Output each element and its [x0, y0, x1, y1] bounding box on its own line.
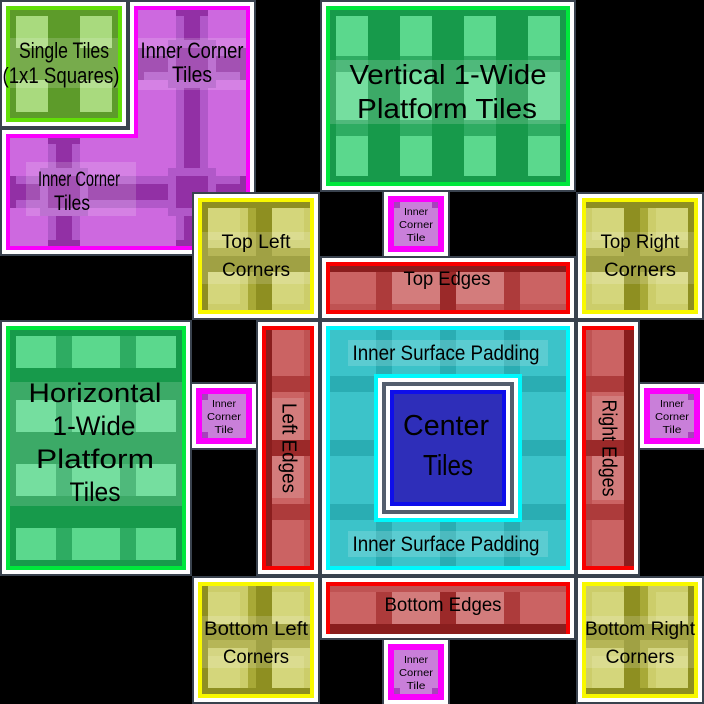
svg-text:Corners: Corners: [604, 260, 676, 281]
svg-text:Corner: Corner: [399, 220, 434, 231]
svg-text:Corners: Corners: [606, 647, 675, 668]
svg-text:Corner: Corner: [399, 668, 434, 679]
svg-text:Corners: Corners: [222, 260, 290, 281]
svg-text:Corners: Corners: [223, 647, 289, 668]
svg-text:Inner Surface Padding: Inner Surface Padding: [353, 342, 540, 365]
svg-text:Corner: Corner: [207, 412, 242, 423]
svg-text:Tile: Tile: [215, 425, 235, 436]
svg-text:Tiles: Tiles: [54, 192, 90, 215]
svg-text:(1x1 Squares): (1x1 Squares): [3, 63, 120, 88]
svg-text:Right Edges: Right Edges: [598, 400, 620, 497]
svg-text:Inner: Inner: [212, 399, 237, 410]
svg-text:Vertical 1-Wide: Vertical 1-Wide: [350, 59, 547, 90]
svg-text:Center: Center: [403, 410, 489, 442]
svg-text:Inner Surface Padding: Inner Surface Padding: [353, 533, 540, 556]
svg-text:Bottom Right: Bottom Right: [585, 619, 696, 640]
svg-text:Top Right: Top Right: [601, 232, 681, 253]
svg-text:Bottom Edges: Bottom Edges: [385, 595, 502, 616]
svg-text:Inner: Inner: [404, 207, 429, 218]
svg-text:Platform: Platform: [36, 444, 154, 474]
svg-text:Inner: Inner: [404, 655, 429, 666]
svg-text:Left Edges: Left Edges: [278, 403, 300, 493]
svg-text:1-Wide: 1-Wide: [53, 411, 136, 441]
svg-text:Horizontal: Horizontal: [29, 378, 162, 408]
svg-text:Tiles: Tiles: [423, 450, 473, 482]
svg-text:Tile: Tile: [407, 681, 427, 692]
svg-text:Single Tiles: Single Tiles: [19, 38, 109, 63]
svg-text:Tiles: Tiles: [172, 62, 212, 87]
svg-text:Inner Corner: Inner Corner: [141, 38, 244, 63]
svg-text:Tile: Tile: [663, 425, 683, 436]
svg-text:Platform Tiles: Platform Tiles: [357, 93, 537, 124]
svg-text:Inner Corner: Inner Corner: [38, 168, 120, 191]
svg-text:Top Left: Top Left: [222, 232, 292, 253]
svg-text:Tiles: Tiles: [70, 477, 121, 507]
svg-text:Inner: Inner: [660, 399, 685, 410]
svg-text:Corner: Corner: [655, 412, 690, 423]
svg-text:Top Edges: Top Edges: [404, 269, 491, 290]
svg-text:Tile: Tile: [407, 233, 427, 244]
svg-text:Bottom Left: Bottom Left: [204, 619, 309, 640]
